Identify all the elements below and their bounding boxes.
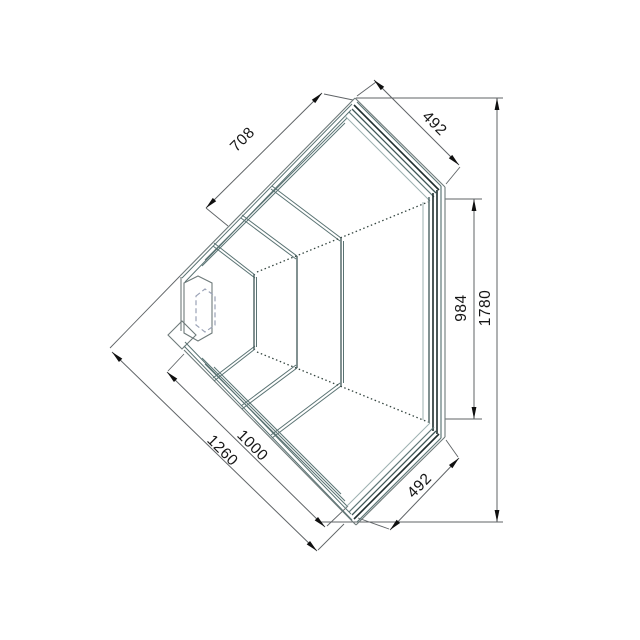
dim-label-492-top: 492 bbox=[419, 108, 450, 139]
dim-label-708: 708 bbox=[227, 124, 258, 155]
glass-stack-bottom-right bbox=[345, 423, 441, 522]
shelf-verticals bbox=[254, 238, 344, 386]
dim-label-1780: 1780 bbox=[477, 290, 494, 326]
shelf-connectors bbox=[213, 186, 341, 438]
front-glass-rails-top bbox=[182, 104, 352, 282]
front-glass-rails-bottom bbox=[184, 342, 352, 520]
dim-label-492-bottom: 492 bbox=[404, 470, 435, 502]
corner-post-hexagon bbox=[184, 276, 212, 341]
extension-lines bbox=[110, 82, 503, 550]
technical-drawing-page: 708 492 984 1780 1000 1260 492 bbox=[0, 0, 640, 640]
glass-stack-right bbox=[423, 186, 441, 438]
corner-display-case-plan-drawing: 708 492 984 1780 1000 1260 492 bbox=[0, 0, 640, 640]
end-cap bbox=[168, 321, 196, 349]
dim-label-984: 984 bbox=[453, 294, 470, 321]
hidden-canopy-edges bbox=[257, 202, 428, 422]
dimension-lines bbox=[112, 80, 497, 551]
